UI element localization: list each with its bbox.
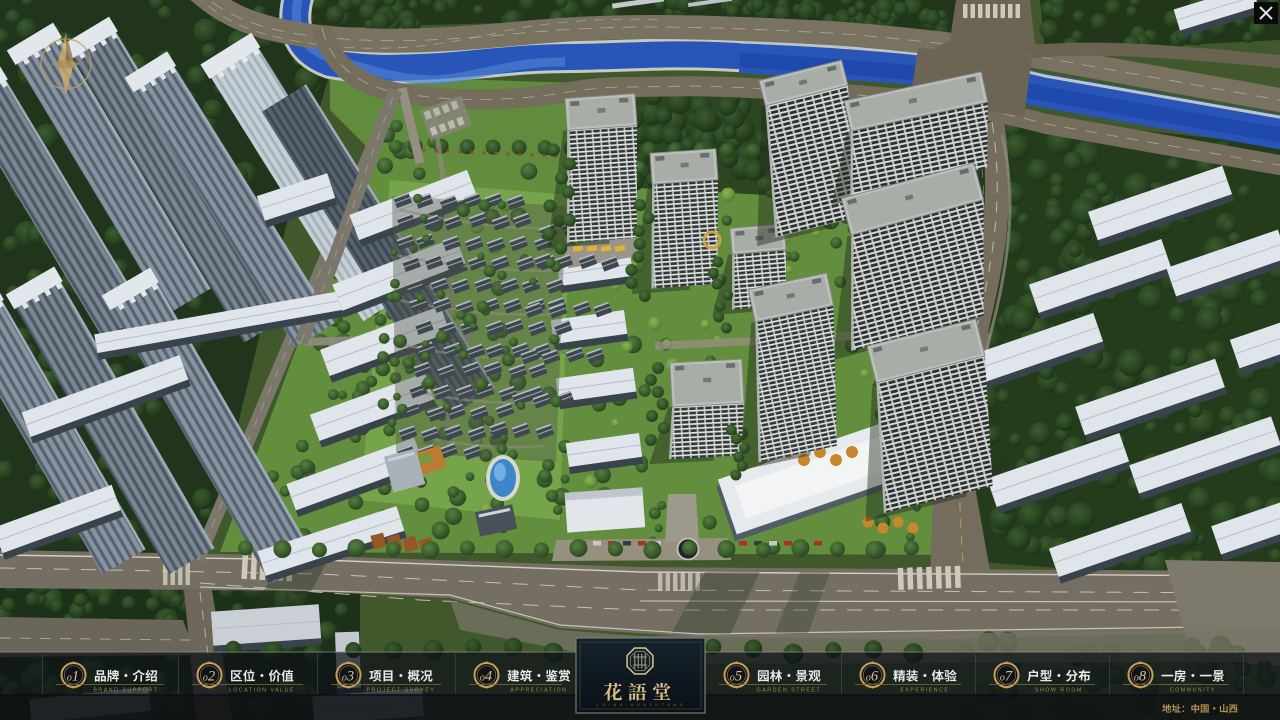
svg-text:SHOW ROOM: SHOW ROOM	[1035, 687, 1083, 693]
svg-text:C H I N A · H U A Y U T A N G: C H I N A · H U A Y U T A N G	[596, 703, 684, 707]
svg-text:GARDEN STREET: GARDEN STREET	[757, 687, 822, 693]
svg-text:PROJECT SURVEY: PROJECT SURVEY	[367, 687, 436, 693]
svg-text:LOCATION VALUE: LOCATION VALUE	[229, 687, 295, 693]
svg-text:BRAND SUPPORT: BRAND SUPPORT	[93, 687, 158, 693]
svg-text:APPRECIATION: APPRECIATION	[510, 687, 567, 693]
svg-text:EXPERIENCE: EXPERIENCE	[900, 687, 949, 693]
svg-text:COMMUNITY: COMMUNITY	[1170, 687, 1216, 693]
